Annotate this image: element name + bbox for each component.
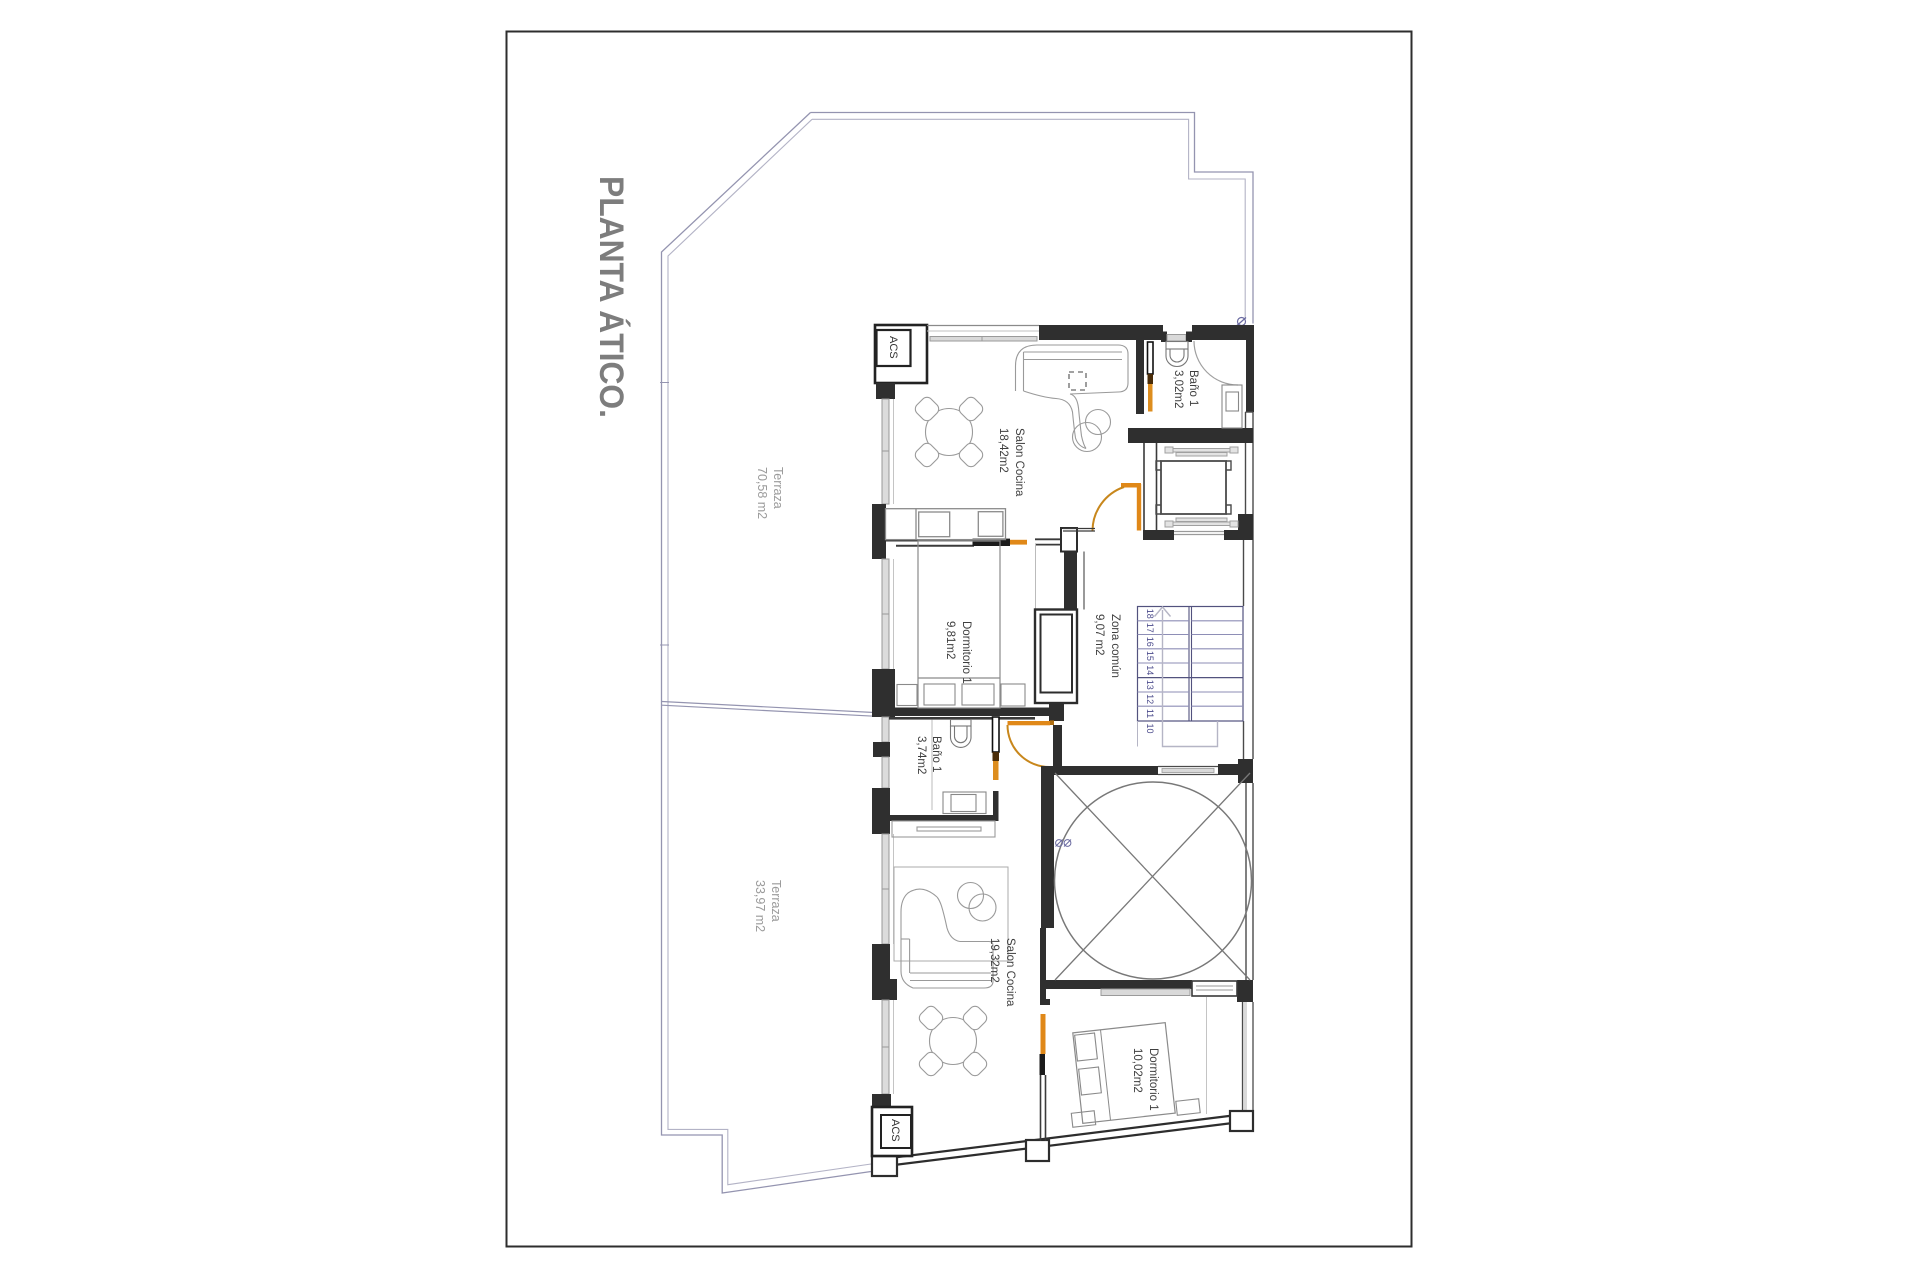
svg-text:Dormitorio 1: Dormitorio 1 — [1147, 1048, 1159, 1111]
svg-text:17: 17 — [1145, 623, 1155, 633]
svg-text:15: 15 — [1145, 651, 1155, 661]
svg-text:ACS: ACS — [887, 336, 899, 359]
svg-text:10: 10 — [1145, 723, 1155, 733]
svg-text:Dormitorio 1: Dormitorio 1 — [960, 621, 972, 684]
svg-text:PLANTA ÁTICO.: PLANTA ÁTICO. — [592, 176, 630, 418]
svg-text:Zona común: Zona común — [1109, 614, 1121, 678]
svg-text:Salon Cocina: Salon Cocina — [1004, 938, 1016, 1007]
svg-text:14: 14 — [1145, 665, 1155, 675]
svg-text:Terraza: Terraza — [769, 880, 783, 922]
svg-text:13: 13 — [1145, 680, 1155, 690]
svg-text:11: 11 — [1145, 709, 1155, 718]
svg-text:16: 16 — [1145, 637, 1155, 647]
svg-text:3,74m2: 3,74m2 — [915, 736, 927, 774]
svg-text:12: 12 — [1145, 694, 1155, 704]
svg-text:3,02m2: 3,02m2 — [1172, 370, 1184, 408]
svg-text:18,42m2: 18,42m2 — [997, 428, 1009, 473]
svg-text:Terraza: Terraza — [771, 467, 785, 509]
svg-text:ACS: ACS — [889, 1119, 901, 1142]
svg-text:19,32m2: 19,32m2 — [988, 938, 1000, 983]
svg-text:33,97 m2: 33,97 m2 — [753, 880, 767, 932]
svg-text:Salon Cocina: Salon Cocina — [1013, 428, 1025, 497]
svg-text:18: 18 — [1145, 609, 1155, 619]
svg-text:Baño 1: Baño 1 — [1187, 370, 1199, 406]
svg-text:9,07 m2: 9,07 m2 — [1093, 614, 1105, 656]
svg-text:10,02m2: 10,02m2 — [1131, 1048, 1143, 1093]
svg-text:Baño 1: Baño 1 — [930, 736, 942, 772]
svg-text:9,81m2: 9,81m2 — [944, 621, 956, 659]
svg-text:70,58 m2: 70,58 m2 — [755, 467, 769, 519]
